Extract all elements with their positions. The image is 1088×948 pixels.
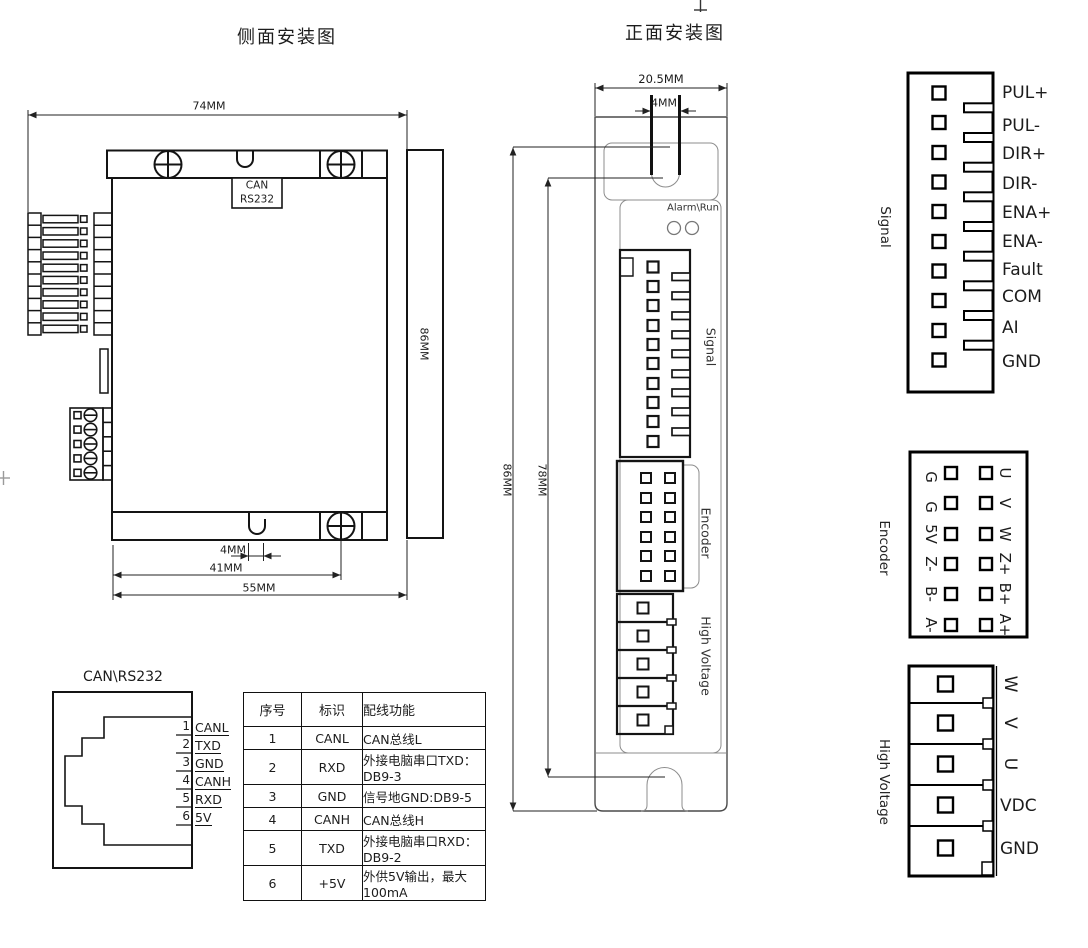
table-cell: RXD	[302, 750, 363, 785]
pin-label-pul-minus: PUL-	[1002, 116, 1040, 136]
table-cell: 信号地GND:DB9-5	[363, 785, 486, 808]
hv-pin-u: U	[1000, 758, 1020, 770]
high-voltage-pinout-title: High Voltage	[876, 739, 892, 825]
rj-title: CAN\RS232	[83, 669, 163, 685]
table-cell: CANL	[302, 727, 363, 750]
side-mid-tab	[100, 349, 108, 393]
hv-pin-v: V	[1000, 717, 1020, 729]
dim-86mm-front: 86MM	[501, 464, 514, 497]
table-cell: +5V	[302, 866, 363, 901]
dim-74mm: 74MM	[193, 100, 226, 113]
pin-label-pul-plus: PUL+	[1002, 83, 1048, 103]
top-tick-mark	[694, 0, 707, 12]
enc-pin-b-plus: B+	[996, 583, 1014, 606]
dim-20-5mm: 20.5MM	[638, 72, 683, 86]
pin-label-fault: Fault	[1002, 260, 1043, 280]
side-can-rs232-label: CAN RS232	[240, 179, 274, 206]
table-row: 1 CANL CAN总线L	[244, 727, 486, 750]
rs232-label: RS232	[240, 193, 274, 205]
rj-pin-5-num: 5	[174, 791, 190, 806]
dim-4mm-front: 4MM	[651, 97, 677, 110]
front-encoder-label: Encoder	[699, 507, 714, 558]
rj-pin-2-num: 2	[174, 737, 190, 752]
table-cell: 外接电脑串口RXD：DB9-2	[363, 831, 486, 866]
pin-label-ena-minus: ENA-	[1002, 232, 1043, 252]
wiring-table: 序号 标识 配线功能 1 CANL CAN总线L 2 RXD 外接电脑串口TXD…	[243, 692, 486, 901]
table-cell: CANH	[302, 808, 363, 831]
pin-label-ena-plus: ENA+	[1002, 203, 1051, 223]
dim-41mm: 41MM	[210, 562, 243, 575]
enc-pin-v: V	[996, 498, 1014, 508]
front-high-voltage-connector	[617, 594, 676, 734]
table-cell: 外供5V输出，最大100mA	[363, 866, 486, 901]
table-cell: 1	[244, 727, 302, 750]
pin-label-com: COM	[1002, 287, 1042, 307]
table-cell: 2	[244, 750, 302, 785]
dim-4mm-side: 4MM	[220, 544, 246, 557]
rj-pin-1-num: 1	[174, 719, 190, 734]
rj-pin-6-label: 5V	[195, 810, 212, 826]
dim-55mm: 55MM	[243, 582, 276, 595]
side-view-screws	[155, 151, 355, 540]
enc-pin-z-plus: Z+	[996, 553, 1014, 576]
table-row: 4 CANH CAN总线H	[244, 808, 486, 831]
side-view-title: 侧面安装图	[237, 23, 337, 49]
table-header-id: 标识	[302, 693, 363, 727]
rj-pin-4-label: CANH	[195, 774, 231, 790]
rj-pin-6-num: 6	[174, 809, 190, 824]
front-signal-label: Signal	[704, 328, 719, 366]
table-cell: 5	[244, 831, 302, 866]
enc-pin-g1: G	[922, 471, 940, 483]
pin-label-gnd: GND	[1002, 352, 1041, 372]
table-cell: 3	[244, 785, 302, 808]
signal-pinout-connector	[908, 73, 994, 392]
table-row: 3 GND 信号地GND:DB9-5	[244, 785, 486, 808]
table-cell: 6	[244, 866, 302, 901]
table-header-func: 配线功能	[363, 693, 486, 727]
edge-cross-mark	[0, 471, 10, 485]
enc-pin-g2: G	[922, 501, 940, 513]
enc-pin-a-plus: A+	[996, 614, 1014, 637]
table-cell: 外接电脑串口TXD：DB9-3	[363, 750, 486, 785]
front-view-title: 正面安装图	[625, 19, 725, 45]
table-row: 6 +5V 外供5V输出，最大100mA	[244, 866, 486, 901]
table-header-row: 序号 标识 配线功能	[244, 693, 486, 727]
side-signal-connector	[28, 213, 112, 335]
rj-pin-4-num: 4	[174, 773, 190, 788]
rj-pin-3-label: GND	[195, 756, 224, 772]
enc-pin-5v: 5V	[922, 524, 940, 544]
pin-label-ai: AI	[1002, 318, 1019, 338]
pin-label-dir-plus: DIR+	[1002, 144, 1046, 164]
enc-pin-w: W	[996, 527, 1014, 542]
signal-pinout-title: Signal	[877, 206, 893, 247]
table-header-num: 序号	[244, 693, 302, 727]
dim-78mm-front: 78MM	[536, 464, 549, 497]
enc-pin-b-minus: B-	[922, 586, 940, 602]
enc-pin-u: U	[996, 468, 1014, 479]
encoder-pinout-title: Encoder	[876, 520, 892, 575]
hv-pin-vdc: VDC	[1000, 796, 1037, 816]
table-cell: TXD	[302, 831, 363, 866]
rj-pin-1-label: CANL	[195, 720, 229, 736]
enc-pin-z-minus: Z-	[922, 556, 940, 571]
front-panel-recess	[596, 143, 726, 811]
rj-pin-2-label: TXD	[195, 738, 221, 754]
side-power-terminal	[70, 408, 112, 480]
high-voltage-pinout-connector	[909, 666, 997, 876]
table-cell: GND	[302, 785, 363, 808]
hv-pin-gnd: GND	[1000, 839, 1039, 859]
table-cell: CAN总线L	[363, 727, 486, 750]
hv-pin-w: W	[1000, 676, 1020, 693]
table-cell: CAN总线H	[363, 808, 486, 831]
mounting-diagram-page: 侧面安装图 正面安装图 74MM 86MM 4MM 41MM 55MM CAN …	[0, 0, 1088, 948]
enc-pin-a-minus: A-	[922, 617, 940, 632]
front-signal-connector	[620, 250, 690, 457]
alarm-run-label: Alarm\Run	[667, 203, 719, 214]
rj-jack-outline	[53, 692, 193, 868]
table-cell: 4	[244, 808, 302, 831]
front-encoder-connector	[617, 461, 699, 591]
dim-86mm-side: 86MM	[418, 328, 431, 361]
table-row: 5 TXD 外接电脑串口RXD：DB9-2	[244, 831, 486, 866]
pin-label-dir-minus: DIR-	[1002, 174, 1037, 194]
led-indicators	[668, 222, 699, 235]
rj-pin-5-label: RXD	[195, 792, 222, 808]
table-row: 2 RXD 外接电脑串口TXD：DB9-3	[244, 750, 486, 785]
front-high-voltage-label: High Voltage	[699, 616, 714, 696]
can-label: CAN	[246, 179, 268, 191]
rj-pin-3-num: 3	[174, 755, 190, 770]
